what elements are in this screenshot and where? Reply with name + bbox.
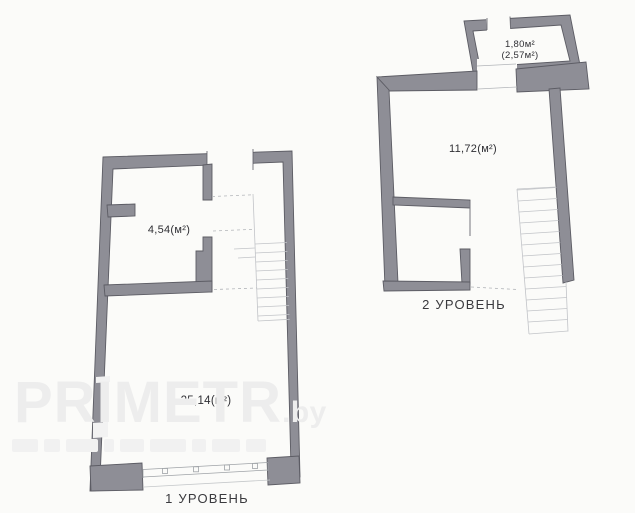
opening-cap (510, 17, 511, 30)
watermark-subline (12, 438, 266, 453)
level2-left-wall (377, 77, 398, 288)
level1-top-opening (207, 147, 253, 175)
watermark-brand: PRIMETR (14, 370, 282, 435)
watermark-subline-block (66, 439, 98, 452)
level2-room-top-label-line1: 1,80м² (505, 39, 535, 50)
watermark-suffix: .by (282, 396, 327, 429)
threshold-line (478, 87, 517, 89)
level1-caption: 1 УРОВЕНЬ (165, 491, 249, 506)
watermark-subline-block (246, 439, 266, 452)
watermark-subline-block (104, 439, 114, 452)
level2-top-wall-left (377, 71, 477, 91)
level-2-plan: 1,80м² (2,57м²) 11,72(м²) (377, 15, 589, 334)
level1-bottom-left-block (90, 463, 143, 491)
level1-room-small-label: 4,54(м²) (148, 224, 190, 236)
watermark-subline-block (212, 439, 240, 452)
watermark-subline-block (192, 439, 206, 452)
level2-room-top-label-line2: (2,57м²) (502, 50, 539, 61)
watermark-subline-block (44, 439, 60, 452)
watermark-subline-block (120, 439, 144, 452)
floorplan-canvas: 4,54(м²) 25,14(м²) (0, 0, 635, 513)
watermark-text: PRIMETR.by (14, 374, 327, 432)
level1-bottom-right-block (267, 456, 300, 485)
level2-tambour-window (486, 16, 511, 32)
level2-caption: 2 УРОВЕНЬ (422, 297, 506, 312)
level2-dashed-boundary (471, 287, 517, 290)
level2-tambour-doorway (477, 57, 517, 87)
watermark-subline-block (12, 439, 38, 452)
watermark-subline-block (150, 439, 186, 452)
level2-room-main-label: 11,72(м²) (449, 143, 497, 155)
floorplan-image: 4,54(м²) 25,14(м²) (0, 0, 635, 513)
